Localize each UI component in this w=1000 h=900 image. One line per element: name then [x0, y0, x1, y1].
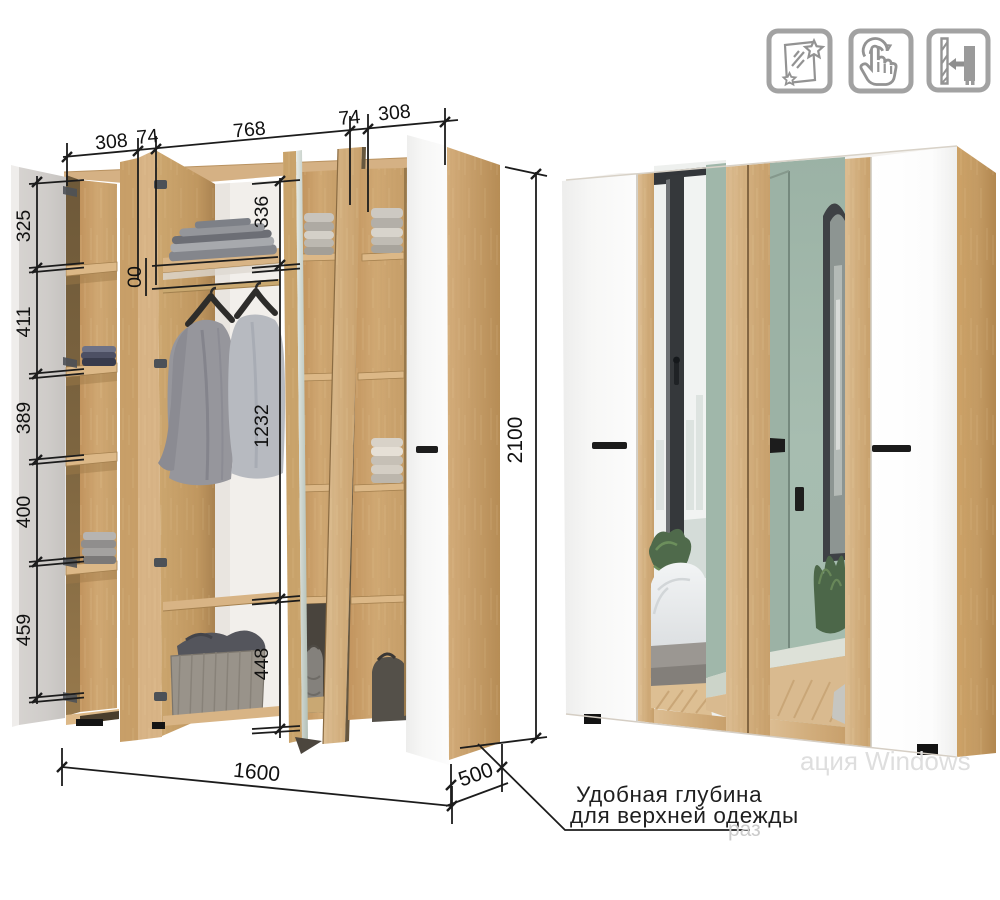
svg-text:336: 336	[251, 196, 273, 229]
svg-text:400: 400	[13, 496, 35, 529]
svg-text:00: 00	[124, 266, 146, 288]
svg-text:411: 411	[13, 306, 35, 337]
svg-text:308: 308	[94, 130, 129, 155]
svg-text:ация Windows: ация Windows	[800, 746, 971, 776]
svg-text:308: 308	[377, 101, 412, 126]
svg-text:1232: 1232	[251, 404, 273, 447]
svg-text:459: 459	[13, 614, 35, 647]
svg-text:768: 768	[232, 118, 267, 143]
svg-text:74: 74	[338, 106, 362, 130]
svg-text:500: 500	[456, 758, 497, 791]
svg-text:2100: 2100	[504, 417, 527, 464]
svg-text:389: 389	[13, 402, 35, 435]
svg-text:для верхней одежды: для верхней одежды	[570, 803, 799, 828]
svg-text:325: 325	[13, 210, 35, 243]
svg-text:448: 448	[251, 648, 273, 681]
svg-text:74: 74	[136, 125, 160, 149]
svg-text:1600: 1600	[232, 759, 281, 787]
svg-text:раз: раз	[728, 818, 761, 841]
